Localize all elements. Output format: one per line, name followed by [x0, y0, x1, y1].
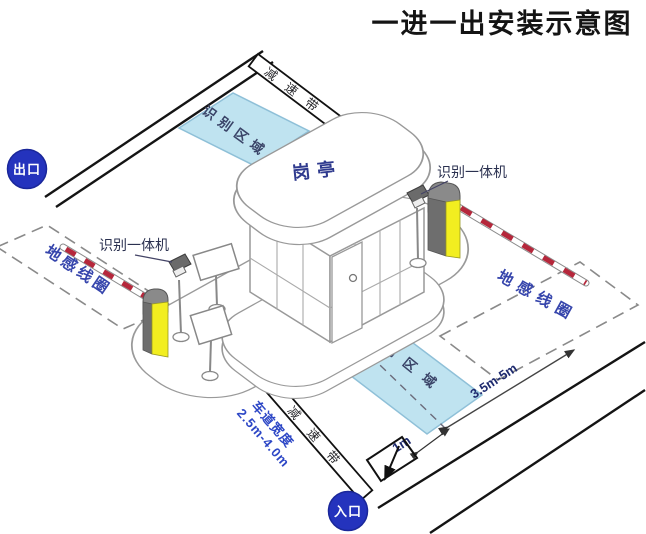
booth-door	[332, 242, 362, 343]
entrance-barrier-machine	[428, 182, 460, 258]
exit-camera-callout: 识别一体机	[99, 237, 172, 262]
exit-camera-label: 识别一体机	[99, 237, 169, 253]
exit-machine-yellow-panel	[152, 302, 168, 357]
booth-door-handle	[350, 275, 357, 282]
diagram-canvas: 减速带 识别区域 地感线圈 地感线圈 识别区域 3.5m-5m 1m 减速带 车…	[0, 0, 646, 534]
entrance-machine-yellow-panel	[446, 200, 460, 258]
exit-badge-label: 出口	[13, 162, 41, 177]
exit-barrier-machine	[143, 289, 168, 357]
entrance-camera-label: 识别一体机	[437, 164, 507, 180]
entrance-barrier-arm	[457, 206, 586, 283]
diagram-title: 一进一出安装示意图	[372, 8, 633, 39]
entrance-ground-coil	[440, 262, 638, 380]
exit-badge: 出口	[8, 150, 47, 189]
coil-distance-label: 3.5m-5m	[467, 360, 519, 401]
installation-diagram: 减速带 识别区域 地感线圈 地感线圈 识别区域 3.5m-5m 1m 减速带 车…	[0, 0, 646, 534]
entrance-badge: 入口	[329, 492, 368, 531]
center-offset-dimension-line	[418, 429, 449, 452]
entrance-badge-label: 入口	[334, 504, 362, 519]
center-offset-label: 1m	[389, 433, 413, 456]
